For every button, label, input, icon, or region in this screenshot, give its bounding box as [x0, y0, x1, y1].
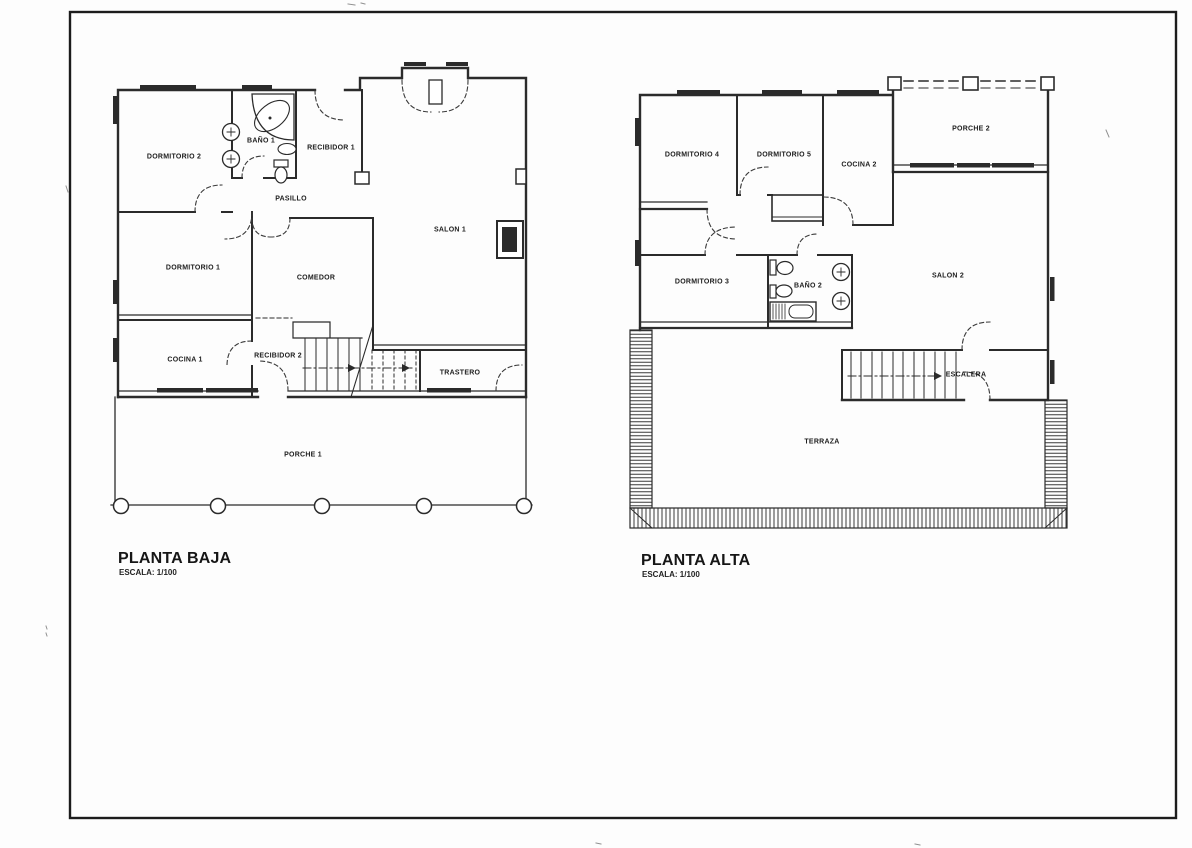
room-label-bano-1: BAÑO 1 [247, 138, 275, 145]
planta-alta-windows [635, 90, 1055, 384]
room-label-terraza: TERRAZA [804, 439, 839, 446]
porch-columns [114, 499, 532, 514]
room-label-recibidor-1: RECIBIDOR 1 [307, 145, 355, 152]
porche2-dashed-wall [888, 77, 1054, 90]
room-label-trastero: TRASTERO [440, 370, 481, 377]
room-label-dormitorio-2: DORMITORIO 2 [147, 154, 201, 161]
planta-alta-door-arcs [705, 167, 990, 400]
sink-icon [833, 264, 850, 310]
planta-baja-plan [111, 62, 532, 514]
planta-alta-interior-walls [640, 95, 1048, 400]
toilet-icon [274, 160, 288, 183]
room-label-comedor: COMEDOR [297, 275, 335, 282]
staircase-planta-alta [848, 352, 956, 398]
toilet-icon [770, 260, 793, 275]
room-label-escalera: ESCALERA [946, 372, 987, 379]
planta-baja-interior-walls [118, 80, 526, 397]
room-label-dormitorio-3: DORMITORIO 3 [675, 279, 729, 286]
fireplace-icon [497, 221, 523, 258]
room-label-recibidor-2: RECIBIDOR 2 [254, 353, 302, 360]
planta-alta-plan [630, 77, 1067, 528]
terrace-hatching [630, 330, 1067, 528]
staircase-planta-baja [293, 322, 416, 397]
planta-baja-outer-walls [111, 68, 532, 505]
planta-baja-title: PLANTA BAJA [118, 550, 231, 568]
room-label-salon-1: SALON 1 [434, 227, 466, 234]
room-label-cocina-1: COCINA 1 [167, 357, 202, 364]
room-label-porche-1: PORCHE 1 [284, 452, 322, 459]
room-label-pasillo: PASILLO [275, 196, 307, 203]
room-label-dormitorio-1: DORMITORIO 1 [166, 265, 220, 272]
scan-speckles [46, 3, 1109, 845]
room-label-porche-2: PORCHE 2 [952, 126, 990, 133]
room-label-dormitorio-4: DORMITORIO 4 [665, 152, 719, 159]
stair-direction-arrow [848, 372, 942, 380]
bidet-icon [770, 285, 792, 298]
room-label-dormitorio-5: DORMITORIO 5 [757, 152, 811, 159]
closet-dormitorio5 [772, 195, 823, 221]
planta-baja-door-arcs [195, 80, 522, 391]
bathtub-icon [249, 94, 295, 140]
drawing-sheet: DORMITORIO 2 BAÑO 1 RECIBIDOR 1 PASILLO … [0, 0, 1192, 848]
planta-alta-scale: ESCALA: 1/100 [642, 570, 700, 579]
floorplan-linework [0, 0, 1192, 848]
planta-baja-scale: ESCALA: 1/100 [119, 568, 177, 577]
room-label-salon-2: SALON 2 [932, 273, 964, 280]
planta-alta-title: PLANTA ALTA [641, 552, 750, 570]
room-label-cocina-2: COCINA 2 [841, 162, 876, 169]
bathtub-icon [770, 302, 816, 321]
room-label-bano-2: BAÑO 2 [794, 283, 822, 290]
